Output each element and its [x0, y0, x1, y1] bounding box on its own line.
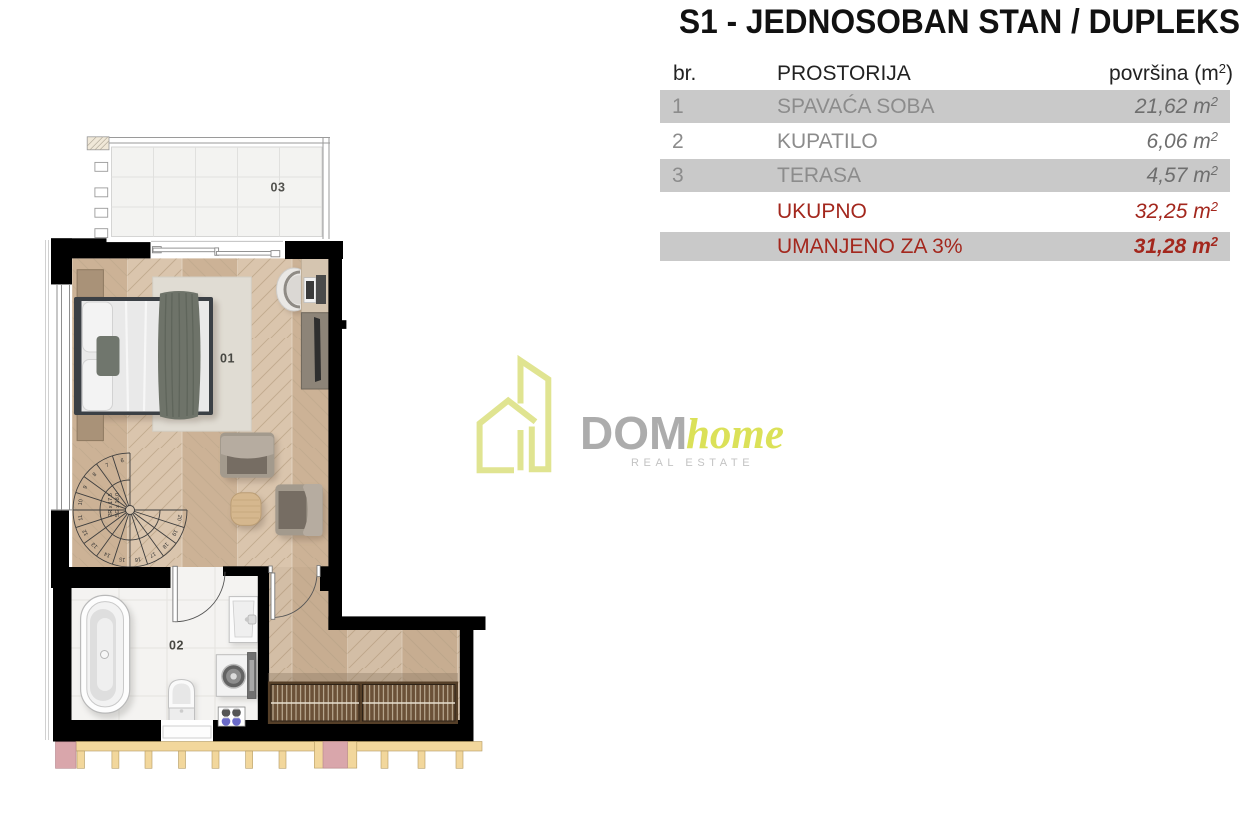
svg-text:20: 20: [175, 514, 182, 521]
svg-text:01: 01: [220, 352, 235, 366]
svg-text:SG x 18,0: SG x 18,0: [115, 493, 121, 517]
svg-text:02: 02: [169, 639, 184, 653]
svg-text:15: 15: [119, 555, 126, 562]
svg-text:03: 03: [271, 181, 286, 195]
svg-text:2R x 17,5: 2R x 17,5: [108, 493, 114, 517]
svg-text:16: 16: [134, 555, 141, 562]
svg-text:11: 11: [78, 514, 85, 521]
svg-text:10: 10: [78, 499, 85, 506]
